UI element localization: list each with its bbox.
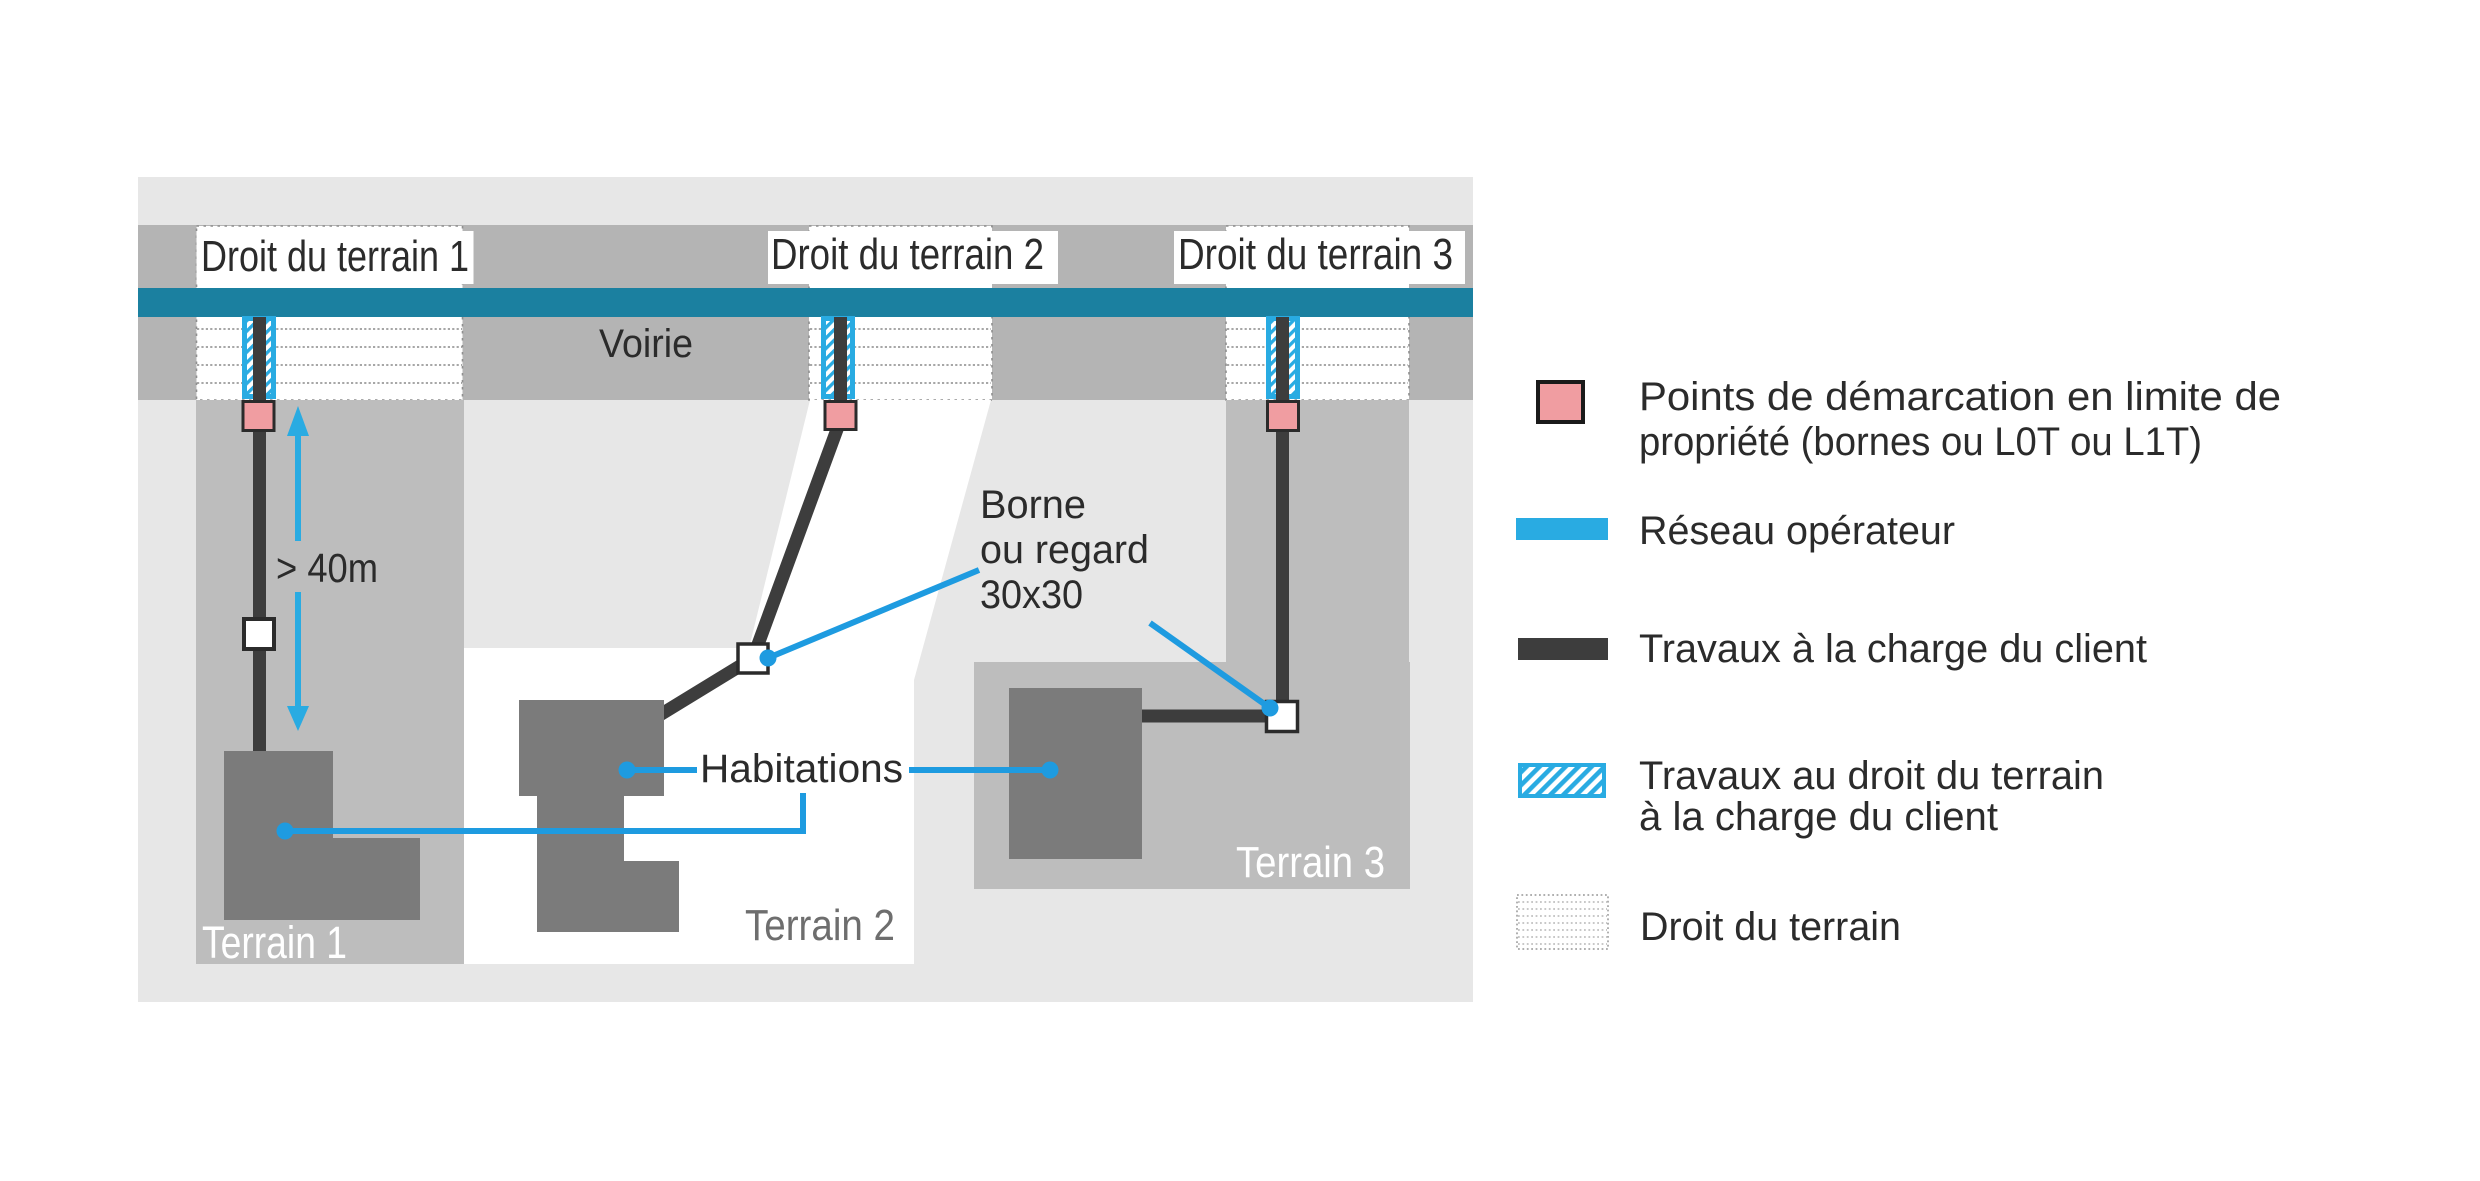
svg-text:> 40m: > 40m bbox=[276, 545, 378, 591]
svg-text:Borne: Borne bbox=[980, 483, 1086, 527]
svg-text:Terrain 1: Terrain 1 bbox=[202, 917, 347, 968]
svg-text:Terrain 2: Terrain 2 bbox=[745, 901, 895, 950]
svg-text:Droit du terrain 2: Droit du terrain 2 bbox=[771, 230, 1044, 279]
svg-text:ou regard: ou regard bbox=[980, 528, 1149, 572]
svg-text:30x30: 30x30 bbox=[980, 573, 1083, 617]
svg-text:Travaux au droit du terrain: Travaux au droit du terrain bbox=[1639, 754, 2104, 798]
svg-text:Droit du terrain: Droit du terrain bbox=[1640, 905, 1901, 949]
svg-text:Terrain 3: Terrain 3 bbox=[1236, 838, 1385, 887]
svg-text:Droit du terrain 3: Droit du terrain 3 bbox=[1178, 230, 1453, 279]
svg-text:Droit du terrain 1: Droit du terrain 1 bbox=[201, 232, 469, 281]
svg-text:Réseau opérateur: Réseau opérateur bbox=[1639, 509, 1955, 553]
svg-text:propriété (bornes ou L0T ou L1: propriété (bornes ou L0T ou L1T) bbox=[1639, 420, 2202, 464]
svg-text:Travaux à la charge du client: Travaux à la charge du client bbox=[1639, 627, 2147, 671]
svg-text:Points de démarcation en limit: Points de démarcation en limite de bbox=[1639, 375, 2281, 419]
svg-text:Voirie: Voirie bbox=[599, 322, 693, 366]
svg-text:Habitations: Habitations bbox=[700, 747, 903, 791]
svg-text:à la charge du client: à la charge du client bbox=[1639, 795, 1998, 839]
